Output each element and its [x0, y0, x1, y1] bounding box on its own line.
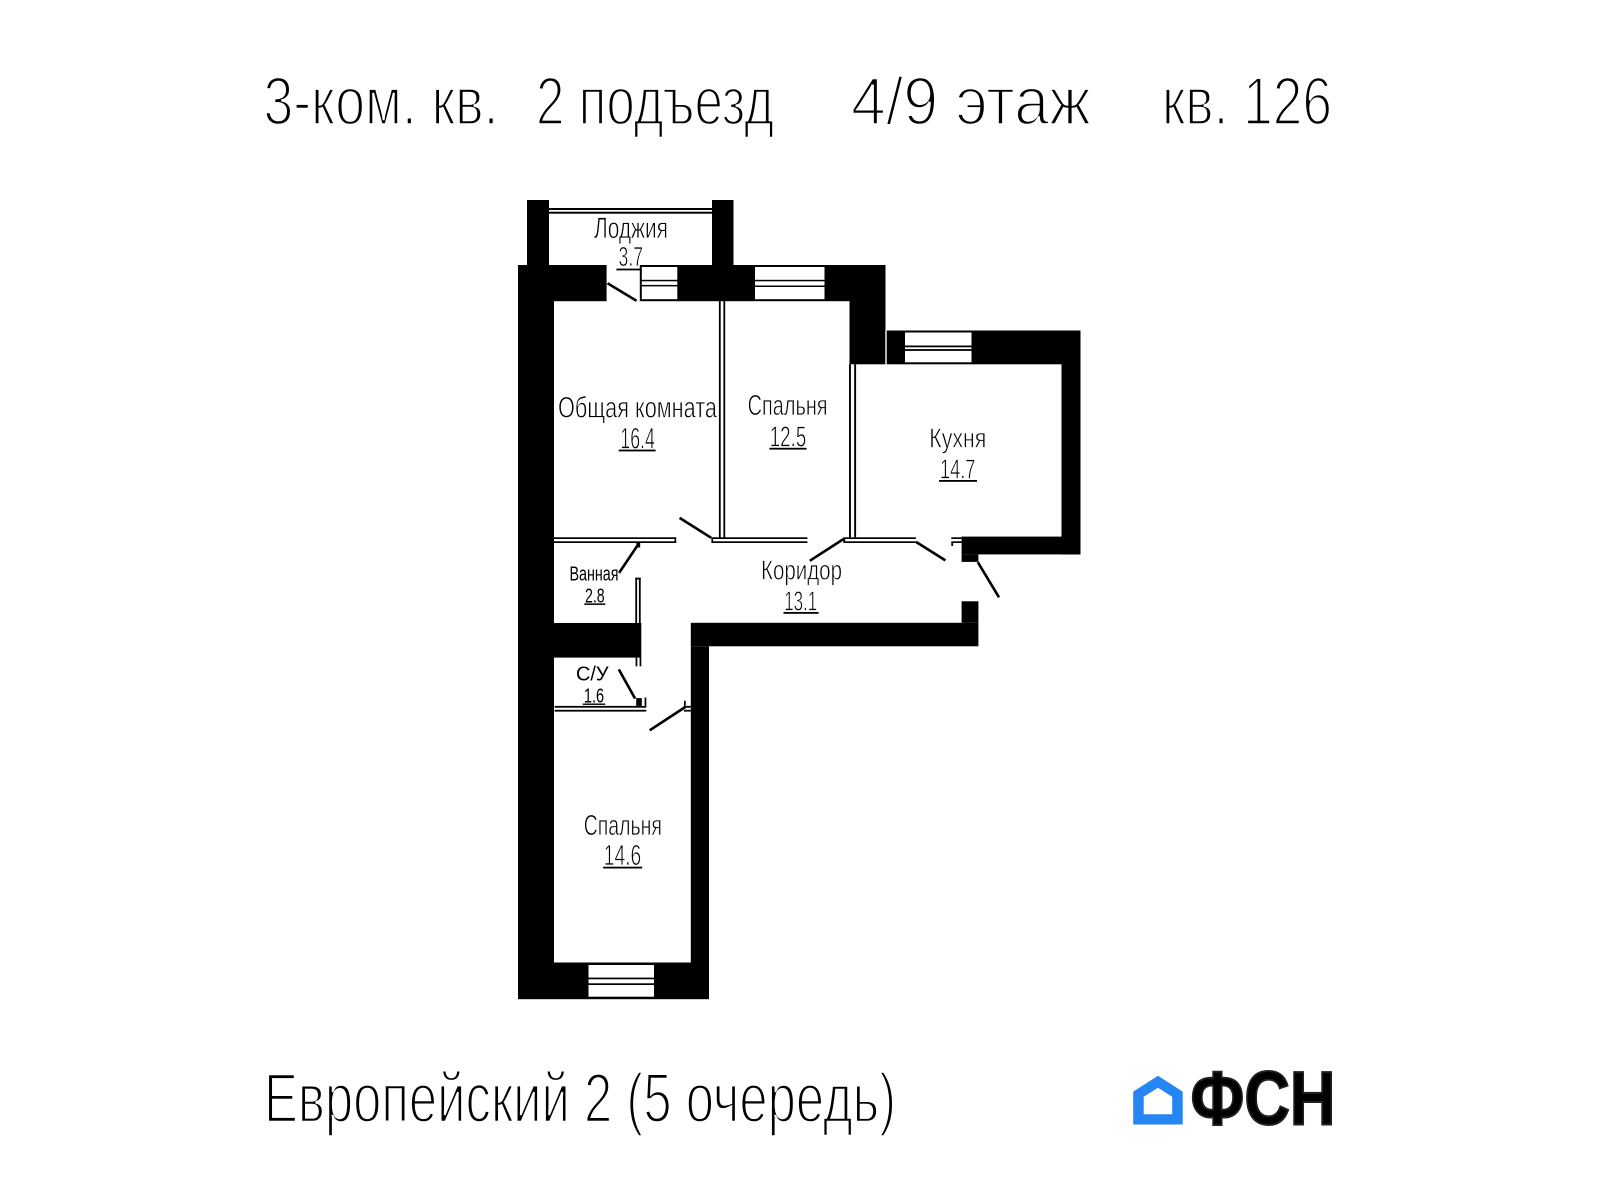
svg-text:4/9 этаж: 4/9 этаж — [851, 64, 1091, 140]
svg-text:2 подъезд: 2 подъезд — [536, 64, 774, 140]
svg-text:С/У: С/У — [576, 664, 609, 686]
svg-text:13.1: 13.1 — [784, 586, 817, 617]
svg-text:Коридор: Коридор — [761, 555, 842, 586]
svg-text:Спальня: Спальня — [584, 810, 662, 842]
svg-text:Кухня: Кухня — [929, 423, 986, 454]
svg-text:Спальня: Спальня — [748, 390, 828, 422]
svg-text:кв. 126: кв. 126 — [1162, 64, 1332, 140]
svg-text:3-ком. кв.: 3-ком. кв. — [264, 64, 499, 140]
svg-text:Общая комната: Общая комната — [558, 391, 717, 424]
svg-text:Европейский 2 (5 очередь): Европейский 2 (5 очередь) — [264, 1059, 896, 1137]
svg-text:ФСН: ФСН — [1191, 1056, 1336, 1141]
svg-text:Ванная: Ванная — [570, 563, 619, 585]
svg-text:3.7: 3.7 — [619, 241, 644, 272]
